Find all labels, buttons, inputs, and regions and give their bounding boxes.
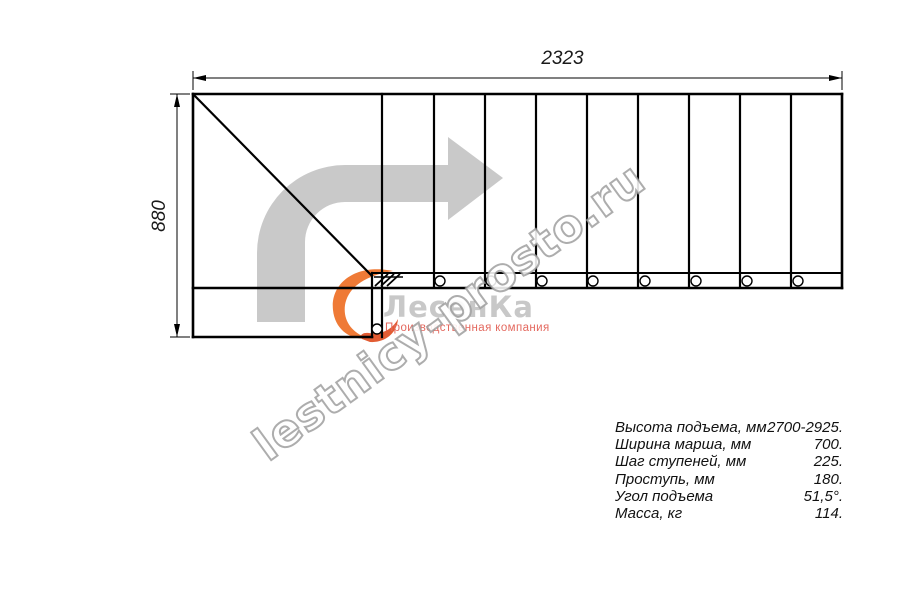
- spec-value: 114.: [815, 505, 843, 522]
- spec-label: Проступь, мм: [615, 471, 715, 488]
- spec-row: Угол подъема 51,5°.: [615, 488, 843, 505]
- spec-value: 700.: [814, 436, 843, 453]
- width-dimension-label: 2323: [520, 48, 605, 70]
- spec-row: Проступь, мм 180.: [615, 471, 843, 488]
- spec-value: 180.: [814, 471, 843, 488]
- spec-label: Шаг ступеней, мм: [615, 453, 746, 470]
- spec-label: Ширина марша, мм: [615, 436, 751, 453]
- spec-row: Ширина марша, мм 700.: [615, 436, 843, 453]
- dimension-height: [170, 94, 190, 337]
- spec-row: Высота подъема, мм 2700-2925.: [615, 419, 843, 436]
- spec-label: Масса, кг: [615, 505, 682, 522]
- spec-label: Угол подъема: [615, 488, 713, 505]
- spec-value: 2700-2925.: [767, 419, 843, 436]
- height-dimension-label: 880: [149, 184, 171, 248]
- specifications-table: Высота подъема, мм 2700-2925. Ширина мар…: [615, 419, 843, 522]
- spec-label: Высота подъема, мм: [615, 419, 767, 436]
- spec-row: Масса, кг 114.: [615, 505, 843, 522]
- spec-value: 51,5°.: [804, 488, 843, 505]
- spec-value: 225.: [814, 453, 843, 470]
- spec-row: Шаг ступеней, мм 225.: [615, 453, 843, 470]
- dimension-width: [193, 71, 842, 90]
- staircase-drawing-page: 2323 880 ЛесенКа Производственная компан…: [0, 0, 900, 600]
